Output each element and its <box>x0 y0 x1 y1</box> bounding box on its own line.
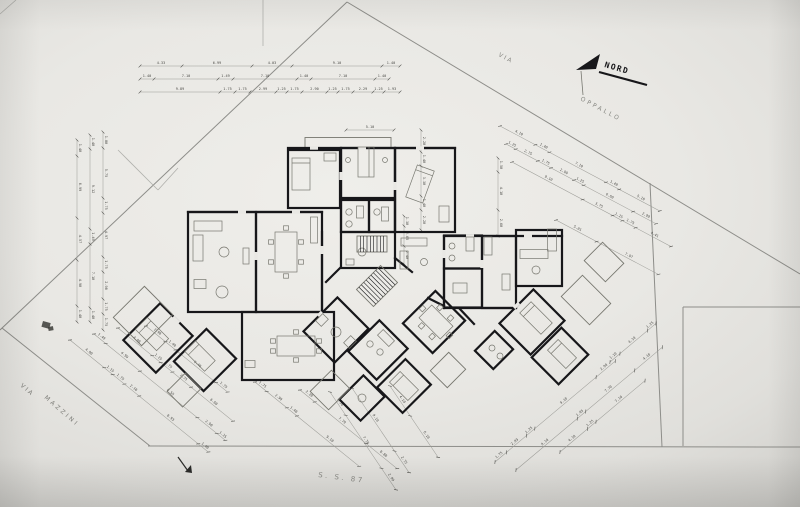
dim-label: 2.20 <box>422 216 426 224</box>
furniture-rect <box>548 229 557 251</box>
furniture-circle <box>346 221 352 227</box>
furniture-circle <box>377 349 383 355</box>
dim-label: 2.99 <box>510 438 519 446</box>
dim-label: 7.10 <box>182 74 190 78</box>
chair <box>429 333 436 340</box>
dim-label: 2.10 <box>129 384 138 392</box>
dim-label: 2.75 <box>523 149 532 156</box>
bed <box>292 158 310 190</box>
dim-label: 1.40 <box>168 339 177 347</box>
dim-label: 1.75 <box>290 87 298 91</box>
furniture-rect <box>520 250 548 259</box>
dim-tick <box>582 183 586 187</box>
dimension-chain: 4.901.151.752.108.931.40 <box>68 335 212 454</box>
dim-label: 4.90 <box>84 347 93 355</box>
furniture-circle <box>374 209 380 215</box>
dim-label: 1.40 <box>78 144 82 152</box>
bed <box>390 372 419 401</box>
dim-tick <box>654 222 658 226</box>
dim-label: 7.97 <box>624 252 633 259</box>
dim-label: 4.57 <box>78 235 82 243</box>
dim-label: 6.10 <box>422 430 430 439</box>
dim-label: 1.25 <box>508 140 517 147</box>
room-walls <box>303 297 368 362</box>
boundary-line <box>650 183 662 447</box>
label-street-via-mazzini-name: MAZZINI <box>43 394 81 428</box>
furniture-rect <box>357 206 364 218</box>
furniture-circle <box>346 158 351 163</box>
dim-label: 2.90 <box>153 327 162 335</box>
wall-segment <box>395 258 412 272</box>
room-walls <box>516 230 562 286</box>
dim-label: 2.60 <box>499 219 503 227</box>
furniture-circle <box>367 341 373 347</box>
building-plan <box>113 138 623 421</box>
dim-label: 1.75 <box>104 302 108 310</box>
furniture-rect <box>194 221 222 231</box>
dim-label: 5.10 <box>366 125 374 129</box>
dim-label: 7.10 <box>91 272 95 280</box>
dim-label: 1.49 <box>609 180 618 187</box>
site-boundary-lines <box>0 0 800 447</box>
north-arrow <box>576 54 647 95</box>
boundary-line <box>347 2 800 274</box>
bed <box>358 147 374 177</box>
dim-label: 6.99 <box>78 183 82 191</box>
dim-tick <box>510 160 514 164</box>
dim-label: 4.41 <box>650 231 659 238</box>
furniture-circle <box>346 209 352 215</box>
dim-tick <box>620 219 624 223</box>
dim-label: 1.75 <box>219 381 228 389</box>
dimension-chain: 4.336.994.039.101.40 <box>139 61 402 67</box>
furniture-rect <box>382 207 389 221</box>
dim-label: 1.50 <box>499 161 503 169</box>
dim-tick <box>533 143 537 147</box>
dim-tick <box>498 124 502 128</box>
dimension-chain: 9.891.751.752.991.251.752.901.251.752.29… <box>139 87 402 93</box>
dimension-chain: 1.805.751.754.971.752.981.751.75 <box>102 131 108 332</box>
dim-label: 2.99 <box>387 473 395 482</box>
dim-label: 1.75 <box>104 260 108 268</box>
dim-label: 1.25 <box>277 87 285 91</box>
dim-label: 5.10 <box>636 194 645 201</box>
dimension-chain: 4.101.407.101.495.10 <box>498 121 663 213</box>
dim-label: 1.49 <box>97 332 106 340</box>
dim-label: 4.10 <box>627 336 636 344</box>
survey-arrow <box>178 457 192 473</box>
stain-mark <box>41 321 53 331</box>
dimension-chain: 1.252.751.752.991.256.602.99 <box>504 139 659 226</box>
dim-label: 4.10 <box>567 434 576 442</box>
dim-label: 4.99 <box>120 351 129 359</box>
dim-tick <box>380 466 384 470</box>
dim-label: 2.99 <box>274 393 283 401</box>
dim-label: 9.10 <box>540 438 549 446</box>
dim-label: 9.89 <box>176 87 184 91</box>
dim-label: 1.75 <box>116 373 125 381</box>
dining-table <box>269 226 304 278</box>
dim-tick <box>548 150 552 154</box>
bed <box>548 340 577 369</box>
dim-label: 8.93 <box>166 414 175 422</box>
furniture-circle <box>358 394 366 402</box>
staircase <box>357 236 387 252</box>
dim-tick <box>394 488 398 492</box>
dim-label: 1.25 <box>374 87 382 91</box>
dim-label: 1.40 <box>300 74 308 78</box>
chair <box>294 330 299 334</box>
dim-label: 3.75 <box>594 201 603 208</box>
dim-label: 4.10 <box>514 129 523 136</box>
chair <box>269 240 274 244</box>
chair <box>418 323 425 330</box>
chair <box>299 240 304 244</box>
dimension-chain: 2.207.798.88 <box>298 385 401 470</box>
staircase <box>356 265 397 306</box>
dim-label: 9.10 <box>333 61 341 65</box>
dim-label: 4.33 <box>157 61 165 65</box>
dim-label: 7.10 <box>261 74 269 78</box>
room-walls <box>256 212 322 312</box>
dim-label: 1.25 <box>328 87 336 91</box>
furniture-circle <box>532 266 540 274</box>
door-opening <box>173 317 179 323</box>
room-walls <box>377 359 431 413</box>
dim-label: 1.40 <box>143 74 151 78</box>
dim-label: 1.40 <box>289 406 298 414</box>
dim-label: 4.03 <box>268 61 276 65</box>
dim-label: 4.97 <box>104 231 108 239</box>
chair <box>299 260 304 264</box>
bed <box>406 165 435 203</box>
dim-label: 1.75 <box>341 87 349 91</box>
room-walls <box>348 320 407 379</box>
dim-label: 1.40 <box>201 442 210 450</box>
dim-tick <box>604 180 608 184</box>
dim-tick <box>408 414 412 418</box>
dim-tick <box>549 166 553 170</box>
dim-label: 1.25 <box>645 321 654 329</box>
dim-label: 1.80 <box>104 136 108 144</box>
floor-plan-drawing: 4.336.994.039.101.401.407.101.497.101.40… <box>0 0 800 507</box>
dim-label: 2.20 <box>422 137 426 145</box>
dimension-chain: 1.504.102.60 <box>497 157 503 238</box>
dim-label: 2.90 <box>310 87 318 91</box>
dim-label: 2.98 <box>104 281 108 289</box>
bed <box>520 302 553 335</box>
dim-label: 1.40 <box>378 74 386 78</box>
dim-label: 1.25 <box>585 419 594 427</box>
room-walls <box>482 236 516 308</box>
dim-tick <box>436 455 440 459</box>
dimension-chain: 4.106.10 <box>388 382 443 459</box>
dim-tick <box>344 413 348 417</box>
dim-label: 9.12 <box>91 185 95 193</box>
balcony-outline <box>584 242 624 282</box>
north-arrow-head <box>576 54 600 70</box>
dim-label: 1.25 <box>614 212 623 219</box>
dim-tick <box>617 187 621 191</box>
room-walls <box>444 236 482 269</box>
dim-tick <box>669 245 673 249</box>
dimension-chain: 2.201.403.301.402.20 <box>420 129 426 232</box>
chair <box>317 339 322 343</box>
dim-label: 2.99 <box>559 168 568 175</box>
dim-label: 9.10 <box>372 413 380 422</box>
dim-label: 1.49 <box>91 232 95 240</box>
dimension-chain: 1.752.991.259.102.90 <box>491 357 617 464</box>
furniture-rect <box>193 235 203 261</box>
furniture-circle <box>421 259 428 266</box>
chair <box>269 260 274 264</box>
dim-label: 1.30 <box>405 217 409 225</box>
dimension-chain: 5.10 <box>345 125 396 131</box>
dim-label: 1.25 <box>218 431 227 439</box>
dim-label: 2.99 <box>641 211 650 218</box>
dim-label: 1.75 <box>494 451 503 459</box>
dimension-chain: 1.406.994.574.901.40 <box>76 139 82 324</box>
furniture-rect <box>346 259 354 265</box>
dim-tick <box>631 210 635 214</box>
dim-tick <box>407 471 411 475</box>
dim-tick <box>393 449 397 453</box>
furniture-circle <box>497 353 503 359</box>
dim-label: 1.05 <box>575 409 584 417</box>
dim-tick <box>514 147 518 151</box>
dim-label: 1.25 <box>575 177 584 184</box>
room-walls <box>341 200 369 232</box>
furniture-rect <box>453 283 467 293</box>
dimension-chain: 5.017.97 <box>554 215 662 276</box>
dim-tick <box>595 240 599 244</box>
dim-label: 4.10 <box>642 352 651 360</box>
balcony-outline <box>430 352 465 387</box>
dim-label: 7.70 <box>604 385 613 393</box>
room-walls <box>444 269 482 308</box>
dim-label: 1.40 <box>539 142 548 149</box>
dimension-chain: 9.103.751.251.754.41 <box>510 157 674 248</box>
label-street-via-mazzini-prefix: VIA <box>19 382 36 398</box>
furniture-rect <box>439 206 449 222</box>
furniture-circle <box>219 247 229 257</box>
dim-label: 7.79 <box>338 416 347 424</box>
furniture-rect <box>484 237 492 255</box>
dim-label: 4.98 <box>132 335 141 343</box>
wall-segment <box>428 298 444 306</box>
dim-label: 6.99 <box>213 61 221 65</box>
dim-label: 9.10 <box>325 435 334 443</box>
dim-label: 1.75 <box>223 87 231 91</box>
dim-label: 5.75 <box>104 169 108 177</box>
furniture-rect <box>466 237 474 251</box>
dim-label: 4.10 <box>499 187 503 195</box>
dim-label: 7.10 <box>339 74 347 78</box>
dim-label: 1.75 <box>104 201 108 209</box>
wall-segment <box>326 268 340 282</box>
dim-label: 1.40 <box>387 61 395 65</box>
dim-label: 1.25 <box>524 426 533 434</box>
dim-tick <box>581 198 585 202</box>
dim-label: 1.93 <box>388 87 396 91</box>
dim-label: 7.10 <box>574 161 583 168</box>
furniture-circle <box>449 255 455 261</box>
dim-label: 2.29 <box>359 87 367 91</box>
dim-tick <box>328 390 332 394</box>
chair <box>284 274 289 278</box>
chair <box>271 349 276 353</box>
furniture-rect <box>502 274 510 290</box>
dim-tick <box>536 159 540 163</box>
furniture-circle <box>216 286 228 298</box>
room-walls <box>369 200 395 232</box>
label-street-via-oppallo-prefix: VIA <box>497 52 514 66</box>
dimension-chain: 9.101.057.704.10 <box>512 343 664 472</box>
dining-table <box>271 330 322 362</box>
furniture-circle <box>383 158 388 163</box>
dim-tick <box>554 218 558 222</box>
chair <box>271 339 276 343</box>
dim-label: 2.90 <box>599 363 608 371</box>
dim-label: 9.10 <box>559 396 568 404</box>
room-walls <box>242 312 334 380</box>
dim-label: 1.75 <box>258 380 267 388</box>
dim-label: 3.30 <box>422 177 426 185</box>
dim-label: 1.75 <box>626 218 635 225</box>
dim-label: 1.40 <box>422 155 426 163</box>
door-opening <box>514 303 519 308</box>
dining-table <box>410 296 462 348</box>
boundary-line <box>148 446 800 447</box>
furniture-circle <box>489 345 495 351</box>
dim-label: 1.75 <box>541 158 550 165</box>
dimension-chain: 4.101.257.10 <box>556 376 647 454</box>
dim-label: 1.25 <box>154 353 163 361</box>
label-road-ss-87: S. S. 87 <box>318 471 365 485</box>
furniture-rect <box>243 248 249 264</box>
dim-label: 9.10 <box>544 175 553 182</box>
furniture-circle <box>449 243 455 249</box>
dim-label: 8.88 <box>379 450 388 458</box>
boundary-line <box>0 2 347 330</box>
chair <box>294 358 299 362</box>
dim-label: 4.90 <box>78 279 82 287</box>
room-walls <box>532 328 589 385</box>
dim-label: 1.15 <box>106 365 115 373</box>
dimension-chain: 1.409.121.497.101.40 <box>89 134 95 324</box>
dim-label: 7.70 <box>362 436 370 445</box>
furniture-rect <box>311 217 318 243</box>
dim-label: 1.10 <box>609 351 618 359</box>
boundary-line <box>118 150 158 190</box>
dim-label: 5.01 <box>573 225 582 232</box>
dim-label: 7.10 <box>614 395 623 403</box>
room-walls <box>288 150 340 208</box>
furniture-circle <box>331 327 341 337</box>
dim-label: 1.75 <box>238 87 246 91</box>
room-walls <box>341 148 395 198</box>
balcony-outline <box>561 275 610 324</box>
blueprint-photo: 4.336.994.039.101.401.407.101.497.101.40… <box>0 0 800 507</box>
room-walls <box>174 329 236 391</box>
dim-tick <box>658 209 662 213</box>
dim-label: 1.75 <box>104 318 108 326</box>
furniture-rect <box>194 280 206 289</box>
dim-label: 1.40 <box>78 310 82 318</box>
furniture-rect <box>324 153 336 161</box>
dim-label: 1.40 <box>91 311 95 319</box>
boundary-line <box>0 0 16 14</box>
dim-tick <box>634 226 638 230</box>
dim-label: 2.90 <box>204 419 213 427</box>
dim-label: 1.49 <box>221 74 229 78</box>
dim-tick <box>657 273 661 277</box>
dim-label: 1.40 <box>91 138 95 146</box>
dim-label: 6.60 <box>209 398 218 406</box>
room-walls <box>339 375 384 420</box>
label-street-via-oppallo-name: OPPALLO <box>579 96 622 123</box>
dim-label: 4.10 <box>398 395 406 404</box>
chair <box>284 226 289 230</box>
dim-label: 2.99 <box>259 87 267 91</box>
furniture-rect <box>245 361 255 368</box>
dim-label: 6.60 <box>605 192 614 199</box>
dim-tick <box>388 384 392 388</box>
dim-label: 2.75 <box>400 456 408 465</box>
chair <box>447 315 454 322</box>
